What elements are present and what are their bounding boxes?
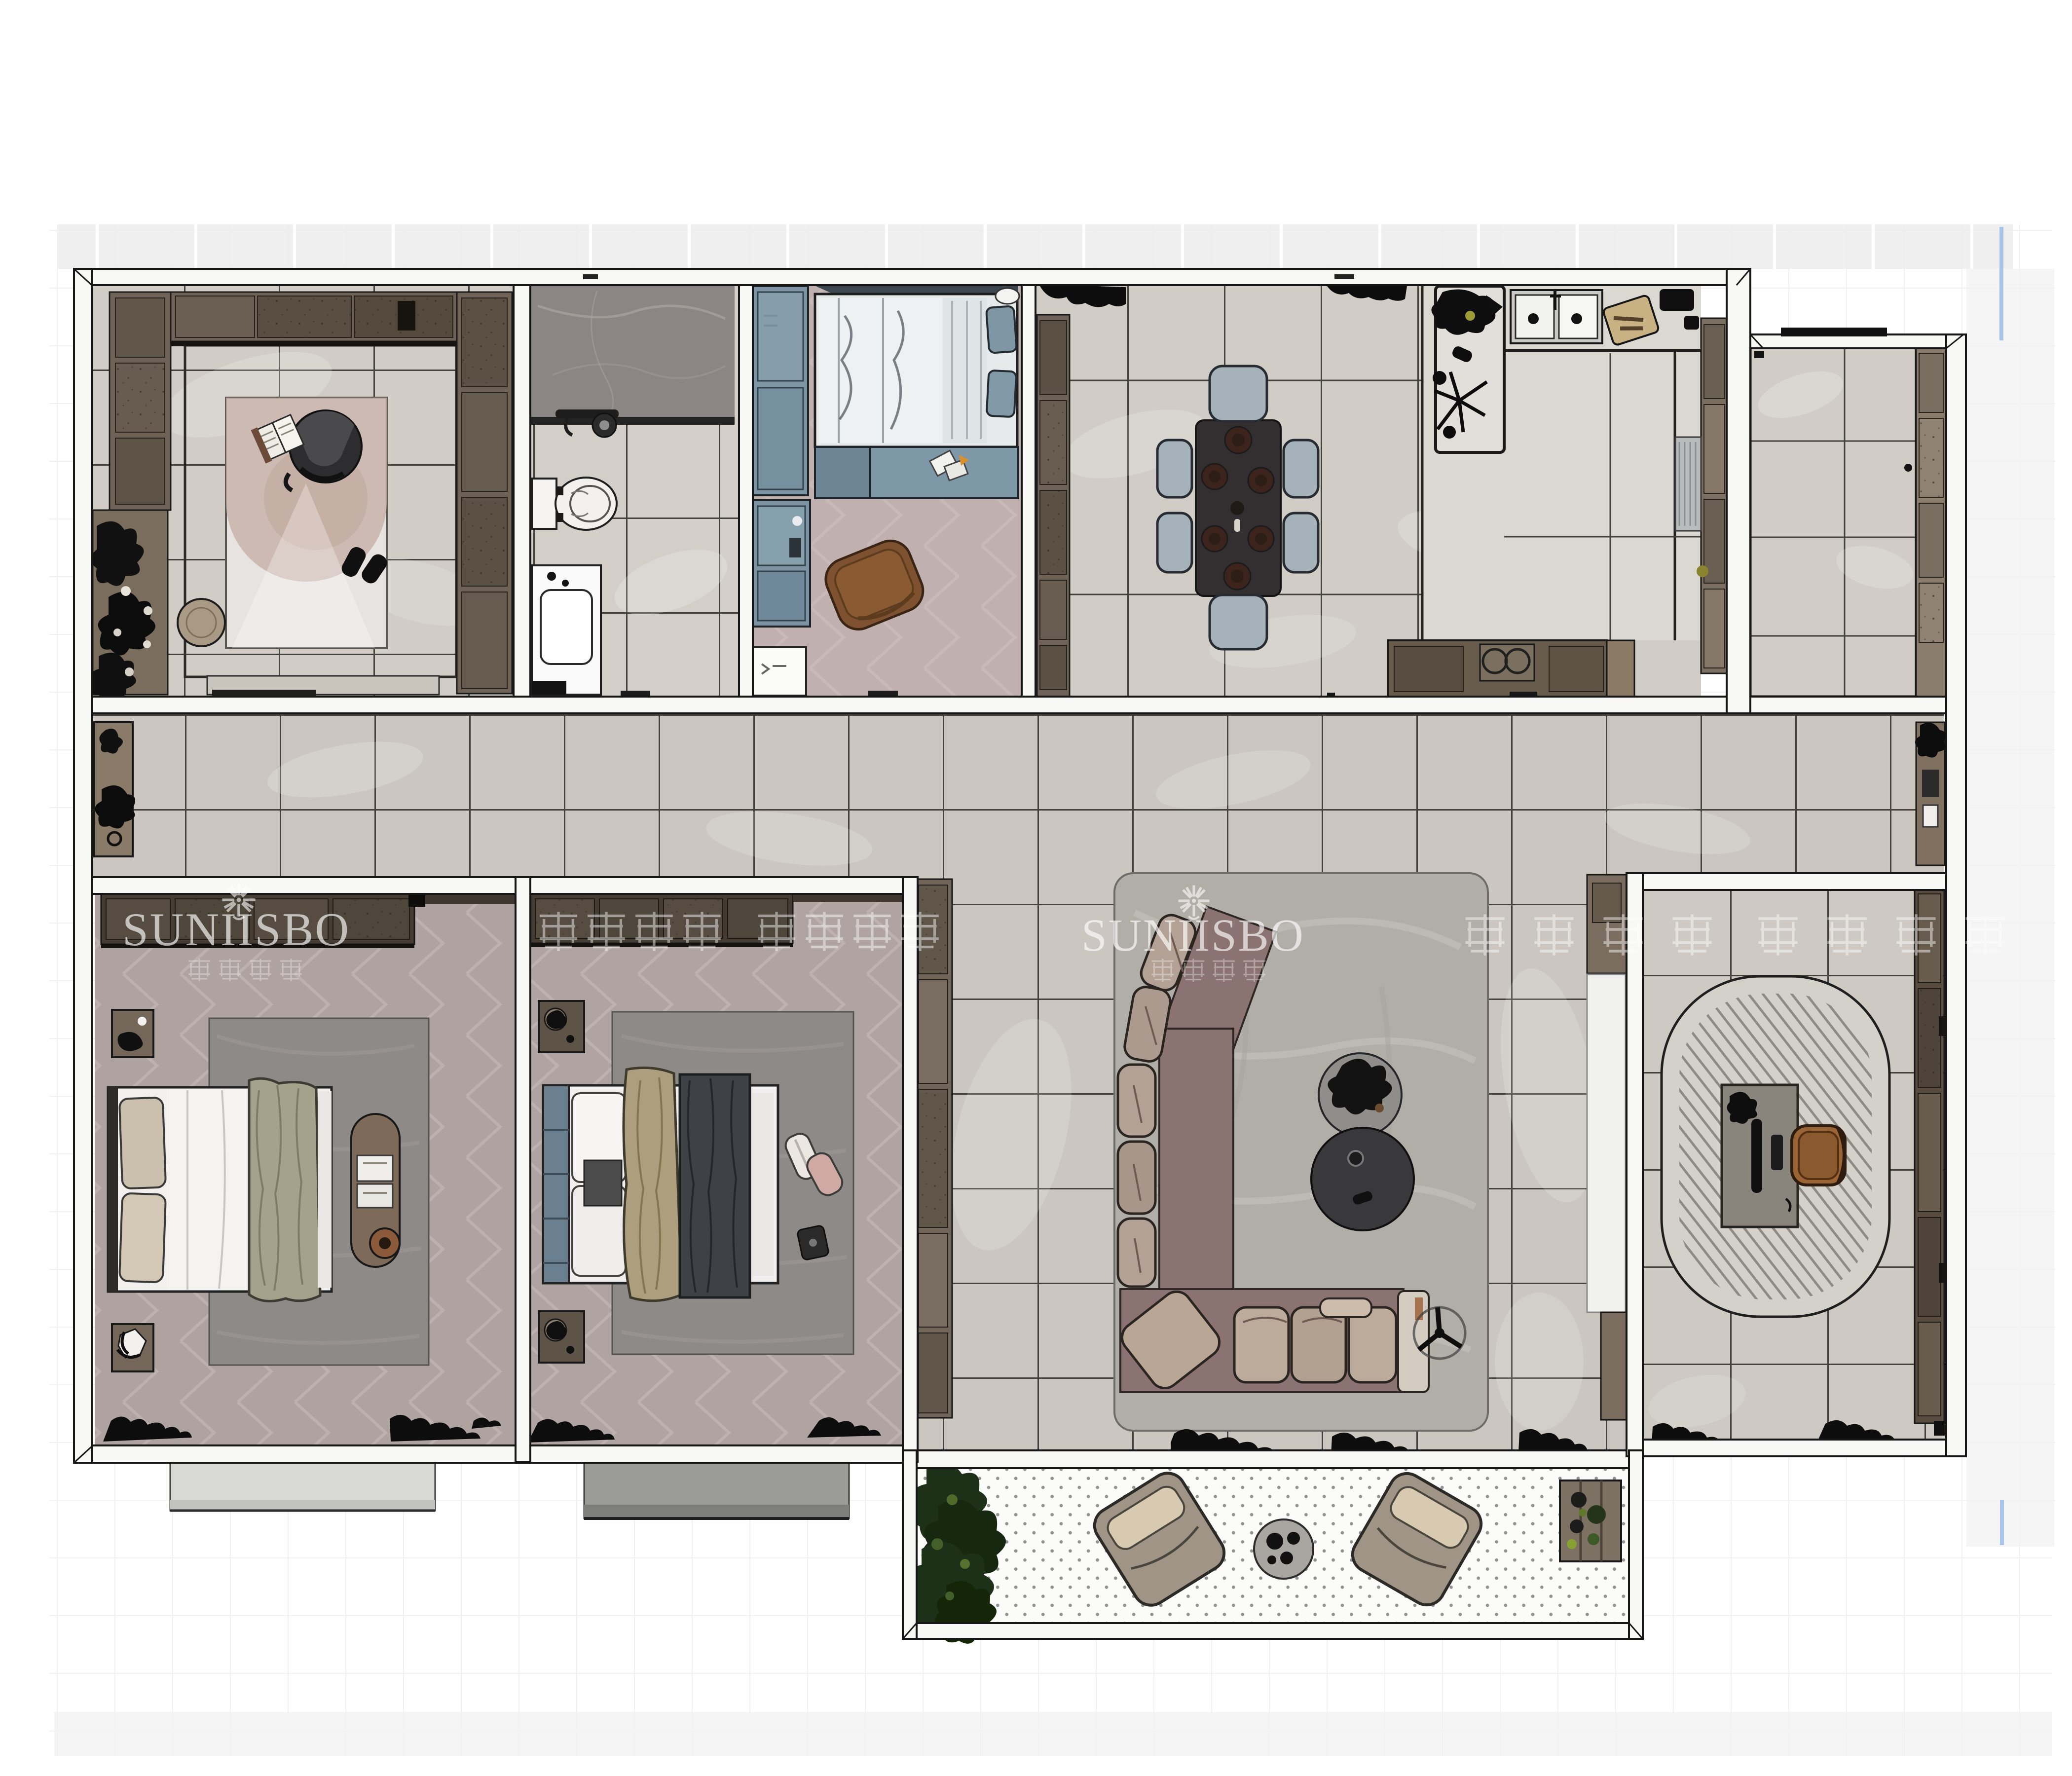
svg-text:SUNIISBO: SUNIISBO bbox=[122, 903, 350, 956]
svg-text:SUNIISBO: SUNIISBO bbox=[1081, 910, 1305, 961]
